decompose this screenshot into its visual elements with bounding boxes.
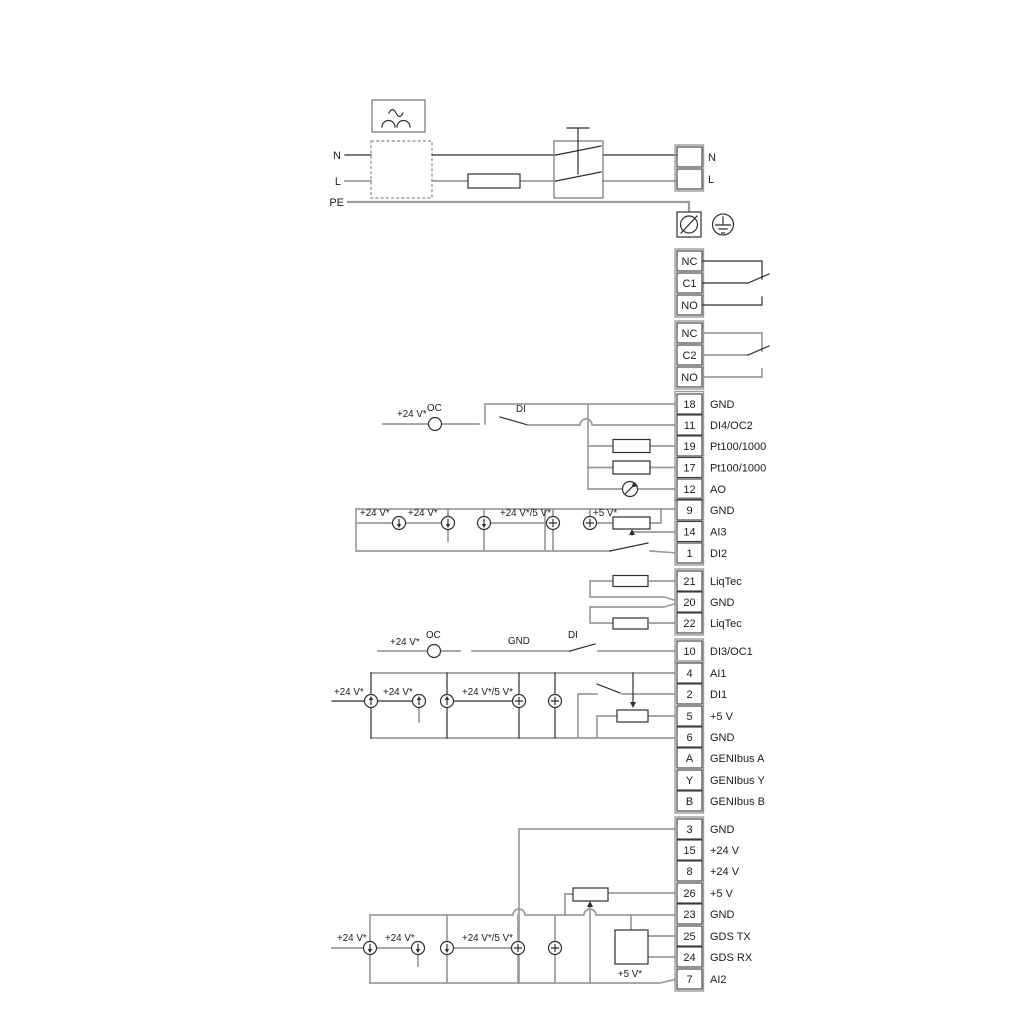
terminal-num: 4 bbox=[686, 668, 692, 680]
terminal-num: 24 bbox=[683, 952, 695, 964]
label-gnd-mid: GND bbox=[508, 636, 530, 647]
terminal-num: 25 bbox=[683, 931, 695, 943]
pt100-resistor bbox=[613, 440, 650, 453]
terminal-cell bbox=[677, 169, 702, 189]
label-24v5v-c: +24 V*/5 V* bbox=[462, 933, 513, 944]
di3-switch-blade bbox=[570, 644, 595, 651]
pt100-resistor bbox=[613, 461, 650, 474]
terminal-num: 6 bbox=[686, 732, 692, 744]
label-24v-b2: +24 V* bbox=[383, 687, 413, 698]
io-top-group: 18 GND 11 DI4/OC2 19 Pt100/1000 17 Pt100… bbox=[383, 392, 766, 501]
label-24v-a1: +24 V* bbox=[360, 508, 390, 519]
wires-l-line bbox=[345, 172, 677, 188]
terminal-label: Pt100/1000 bbox=[710, 441, 766, 453]
terminal-num: Y bbox=[686, 775, 694, 787]
pe-screw-terminal bbox=[677, 212, 701, 237]
di1-switch-blade bbox=[597, 684, 620, 693]
label-di-mid: DI bbox=[568, 630, 578, 641]
oc-circle bbox=[428, 645, 441, 658]
label-di-top: DI bbox=[516, 404, 526, 415]
liqtec-group: 21 LiqTec 20 GND 22 LiqTec bbox=[590, 569, 742, 635]
analog-output-meter-icon bbox=[623, 482, 639, 497]
bottom-group: 3 GND 15 +24 V 8 +24 V 26 +5 V 23 GND 25… bbox=[332, 817, 753, 991]
terminal-num: 18 bbox=[683, 399, 695, 411]
label-5v-a: +5 V* bbox=[593, 508, 617, 519]
label-n-right: N bbox=[708, 152, 716, 164]
terminal-num: 15 bbox=[683, 845, 695, 857]
relay2-nc: NC bbox=[682, 328, 698, 340]
terminal-num: 21 bbox=[683, 576, 695, 588]
terminal-label: GND bbox=[710, 505, 735, 517]
terminal-label: AI1 bbox=[710, 668, 727, 680]
sensor-source-circle-plus bbox=[549, 942, 562, 955]
label-24v5v-b: +24 V*/5 V* bbox=[462, 687, 513, 698]
relay1-nc: NC bbox=[682, 256, 698, 268]
relay2-c2: C2 bbox=[682, 350, 696, 362]
terminal-label: DI1 bbox=[710, 689, 727, 701]
sensor-source-circle-up bbox=[413, 695, 426, 708]
terminal-num: A bbox=[686, 753, 694, 765]
wires-n-line bbox=[345, 146, 677, 155]
terminal-label: +5 V bbox=[710, 888, 734, 900]
label-oc-top: OC bbox=[427, 403, 442, 414]
potentiometer bbox=[613, 517, 650, 529]
relay1-contact-blade bbox=[748, 274, 769, 283]
label-oc-mid: OC bbox=[426, 630, 441, 641]
terminal-num: B bbox=[686, 796, 693, 808]
terminal-label: Pt100/1000 bbox=[710, 463, 766, 475]
terminal-num: 26 bbox=[683, 888, 695, 900]
relay1-no: NO bbox=[681, 300, 698, 312]
wires-relay1 bbox=[703, 261, 769, 305]
terminal-label: AI3 bbox=[710, 527, 727, 539]
oc-circle bbox=[429, 418, 442, 431]
label-24v-c2: +24 V* bbox=[385, 933, 415, 944]
sine-icon bbox=[389, 110, 403, 117]
terminal-label: DI3/OC1 bbox=[710, 646, 753, 658]
sensor-source-circle-down bbox=[442, 517, 455, 530]
di4-switch-blade bbox=[500, 417, 528, 425]
terminal-num: 7 bbox=[686, 974, 692, 986]
gds-sensor-box bbox=[615, 930, 648, 964]
terminal-label: GND bbox=[710, 597, 735, 609]
rcd-symbol-box bbox=[372, 100, 425, 132]
wires-pe-line bbox=[348, 202, 689, 212]
sensor-source-circle-down bbox=[441, 942, 454, 955]
label-24v-b1: +24 V* bbox=[334, 687, 364, 698]
power-section: N L PE bbox=[329, 100, 733, 237]
terminal-label: +24 V bbox=[710, 866, 740, 878]
sensor-source-circle-up bbox=[441, 695, 454, 708]
terminal-num: 11 bbox=[684, 420, 695, 432]
terminal-num: 9 bbox=[686, 505, 692, 517]
pulsating-dc-icon bbox=[382, 121, 410, 128]
terminal-label: DI2 bbox=[710, 548, 727, 560]
terminal-label: GND bbox=[710, 909, 735, 921]
filter-box bbox=[371, 141, 432, 198]
potentiometer bbox=[617, 710, 648, 722]
label-l-right: L bbox=[708, 174, 714, 186]
terminal-label: GENIbus A bbox=[710, 753, 765, 765]
relay1-c1: C1 bbox=[682, 278, 696, 290]
terminal-label: LiqTec bbox=[710, 618, 742, 630]
di2-switch-blade bbox=[610, 543, 648, 551]
terminal-num: 14 bbox=[683, 527, 695, 539]
sensor-source-circle-down bbox=[393, 517, 406, 530]
terminal-label: DI4/OC2 bbox=[710, 420, 753, 432]
analog2-group: 4 AI1 2 DI1 5 +5 V 6 GND A GENIbus A Y G… bbox=[332, 661, 765, 813]
liqtec-resistor bbox=[613, 618, 648, 629]
potentiometer-wiper-arrow bbox=[587, 901, 593, 907]
terminal-num: 8 bbox=[686, 866, 692, 878]
wiring-diagram: N L PE bbox=[0, 0, 1024, 1024]
terminal-num: 20 bbox=[683, 597, 695, 609]
terminal-num: 2 bbox=[686, 689, 692, 701]
terminal-num: 17 bbox=[683, 463, 695, 475]
terminal-label: +5 V bbox=[710, 711, 734, 723]
wiring-diagram-page: N L PE bbox=[0, 0, 1024, 1024]
terminal-label: AO bbox=[710, 484, 726, 496]
terminal-label: GND bbox=[710, 399, 735, 411]
sensor-source-circle-plus bbox=[513, 695, 526, 708]
relay2-contact-blade bbox=[748, 346, 769, 355]
terminal-num: 23 bbox=[683, 909, 695, 921]
sensor-source-circle-up bbox=[365, 695, 378, 708]
label-5v-gds: +5 V* bbox=[618, 969, 642, 980]
terminal-block-nl: N L bbox=[675, 145, 716, 191]
terminal-cell bbox=[677, 147, 702, 167]
potentiometer-wiper-arrow bbox=[630, 702, 636, 708]
sensor-source-circle-down bbox=[478, 517, 491, 530]
fuse bbox=[468, 174, 520, 188]
label-24v-mid: +24 V* bbox=[390, 637, 420, 648]
terminal-label: GND bbox=[710, 732, 735, 744]
terminal-label: GDS RX bbox=[710, 952, 753, 964]
terminal-num: 10 bbox=[683, 646, 695, 658]
label-24v-oc-top: +24 V* bbox=[397, 409, 427, 420]
label-24v-c1: +24 V* bbox=[337, 933, 367, 944]
terminal-num: 1 bbox=[686, 548, 692, 560]
wires-liqtec bbox=[590, 581, 677, 623]
earth-icon bbox=[713, 214, 734, 235]
label-l-left: L bbox=[335, 176, 341, 188]
label-24v5v-a: +24 V*/5 V* bbox=[500, 508, 551, 519]
terminal-label: AI2 bbox=[710, 974, 727, 986]
main-switch bbox=[554, 128, 603, 198]
sensor-source-circle-plus bbox=[512, 942, 525, 955]
sensor-source-circle-plus bbox=[549, 695, 562, 708]
terminal-label: +24 V bbox=[710, 845, 740, 857]
terminal-num: 22 bbox=[683, 618, 695, 630]
label-n-left: N bbox=[333, 150, 341, 162]
terminal-label: GENIbus Y bbox=[710, 775, 765, 787]
relay1-block: NC C1 NO bbox=[675, 249, 769, 317]
label-24v-a2: +24 V* bbox=[408, 508, 438, 519]
relay2-no: NO bbox=[681, 372, 698, 384]
terminal-label: GDS TX bbox=[710, 931, 751, 943]
terminal-num: 3 bbox=[686, 824, 692, 836]
wires-row-b bbox=[332, 673, 677, 738]
terminal-num: 5 bbox=[686, 711, 692, 723]
potentiometer bbox=[573, 888, 608, 901]
label-pe: PE bbox=[329, 197, 344, 209]
liqtec-resistor bbox=[613, 576, 648, 587]
analog1-group: 9 GND 14 AI3 1 DI2 bbox=[356, 498, 735, 565]
relay2-block: NC C2 NO bbox=[675, 321, 769, 389]
terminal-label: GENIbus B bbox=[710, 796, 765, 808]
terminal-label: GND bbox=[710, 824, 735, 836]
terminal-num: 19 bbox=[683, 441, 695, 453]
wires-relay2 bbox=[703, 333, 769, 377]
terminal-label: LiqTec bbox=[710, 576, 742, 588]
terminal-num: 12 bbox=[683, 484, 695, 496]
